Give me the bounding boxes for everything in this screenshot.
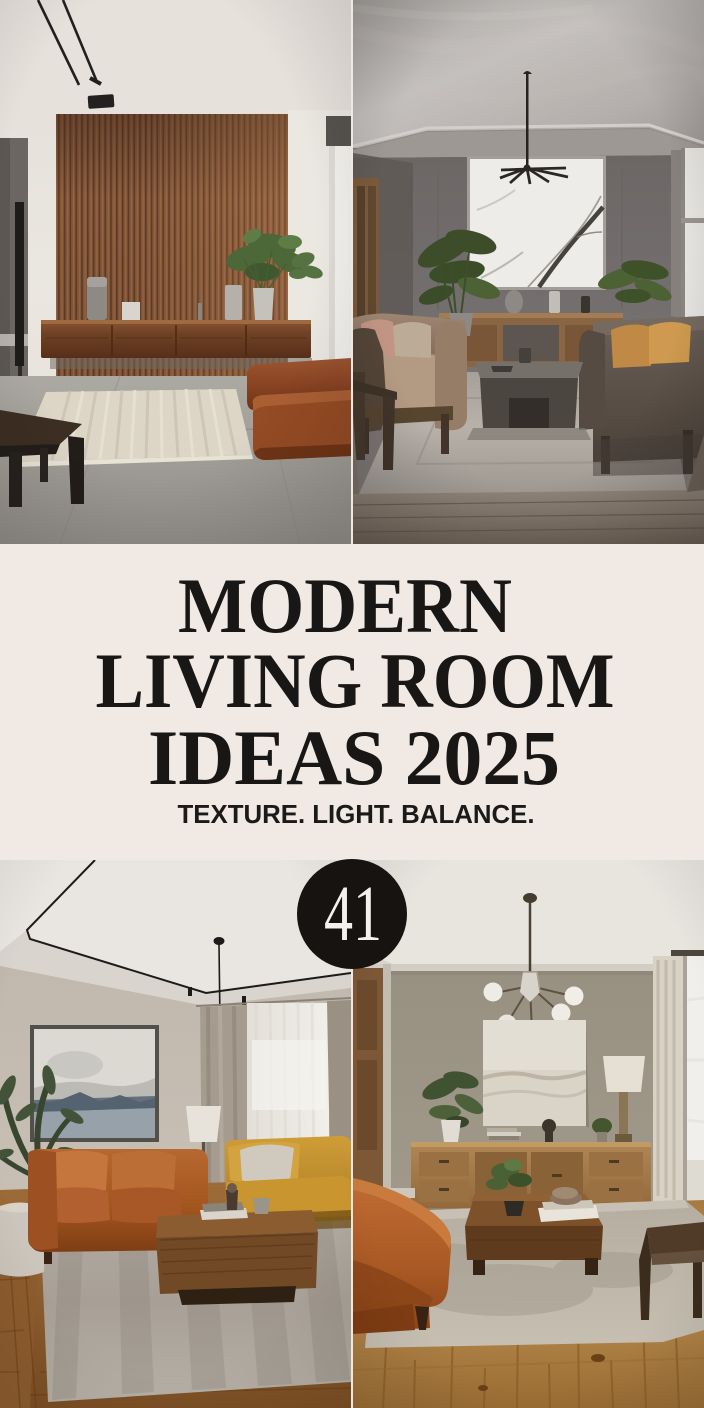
svg-text:41: 41 [324, 871, 382, 958]
svg-text:MODERN: MODERN [178, 562, 512, 649]
svg-text:LIVING ROOM: LIVING ROOM [96, 637, 615, 724]
svg-text:IDEAS 2025: IDEAS 2025 [148, 714, 560, 801]
svg-text:TEXTURE. LIGHT. BALANCE.: TEXTURE. LIGHT. BALANCE. [178, 799, 535, 829]
